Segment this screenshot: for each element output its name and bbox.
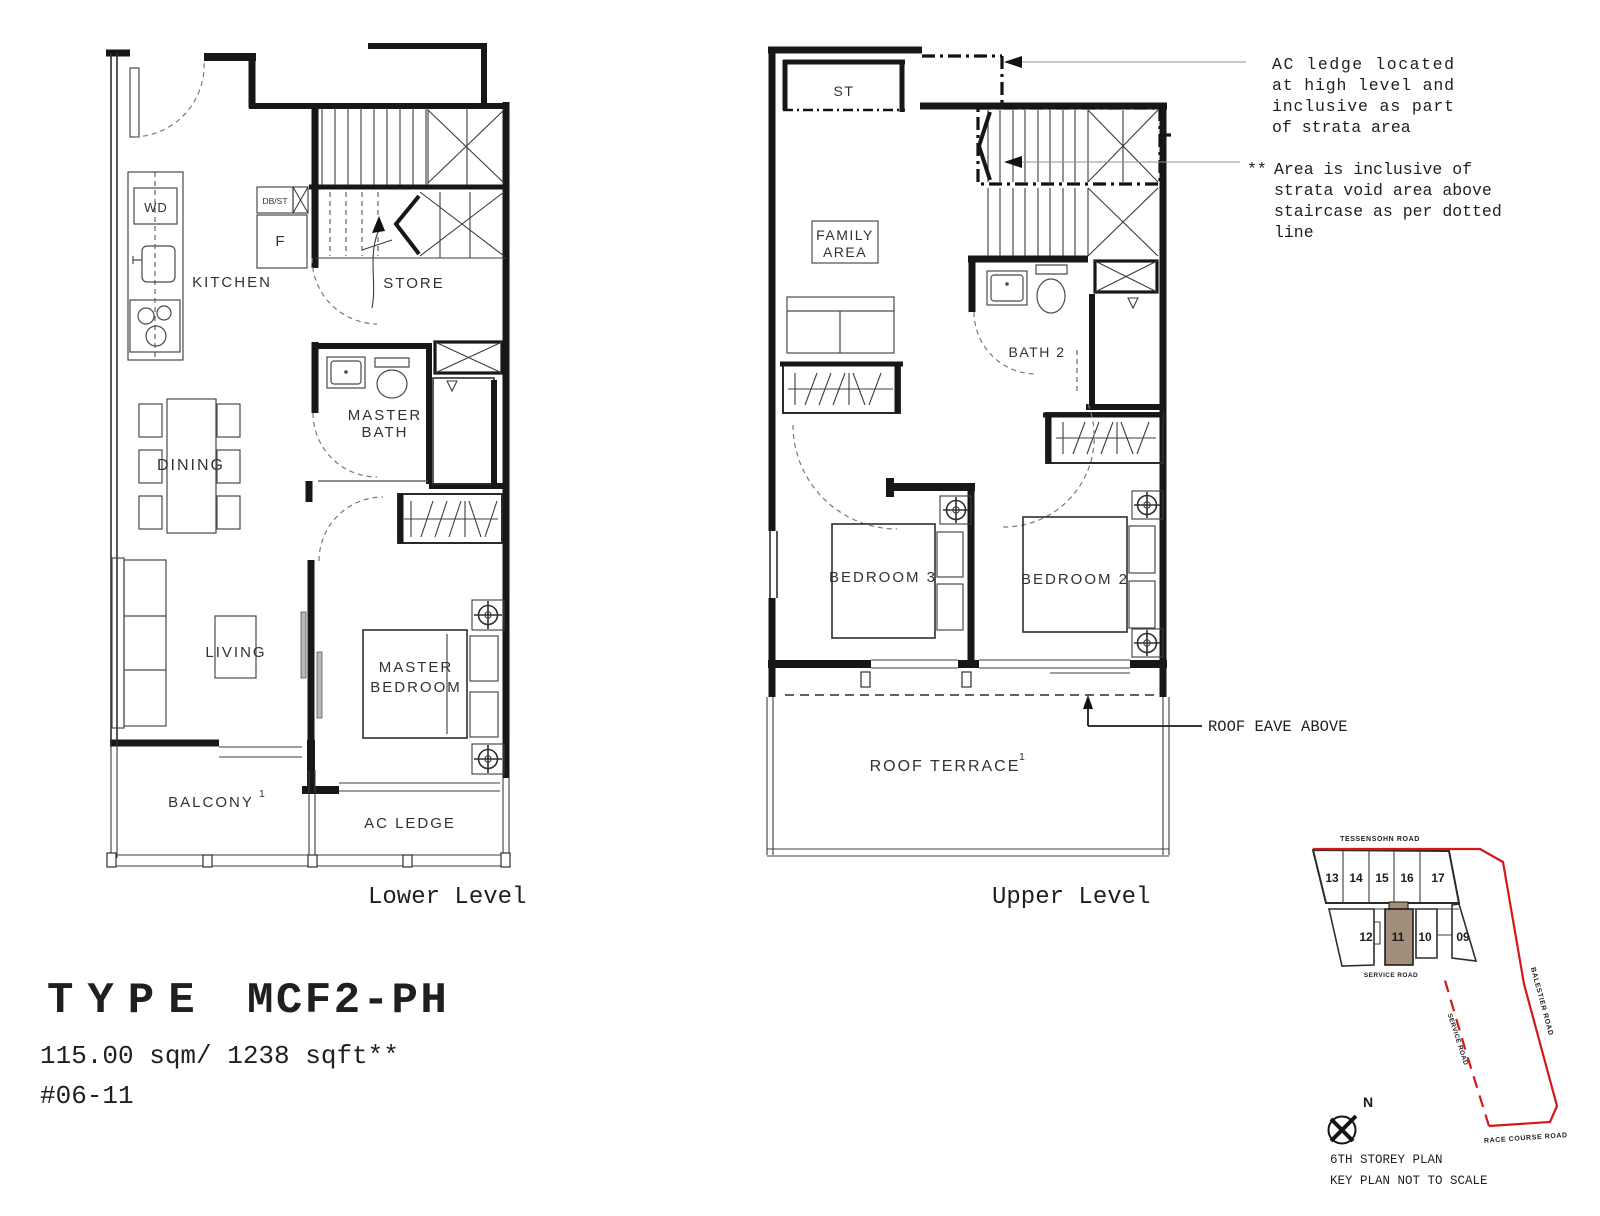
- stair-cut-line: [396, 196, 419, 254]
- balcony-superscript: 1: [259, 788, 265, 800]
- type-word: TYPE: [47, 976, 209, 1026]
- bedroom2-label: BEDROOM 2: [1021, 571, 1129, 588]
- upper-level-caption: Upper Level: [992, 884, 1150, 911]
- roof-terrace-outline: [767, 695, 1169, 856]
- store-door-swing: [312, 258, 377, 324]
- store-label: STORE: [383, 275, 444, 292]
- bath2-sink: [987, 271, 1027, 305]
- north-symbol: [1329, 1116, 1357, 1144]
- unit-14: 14: [1349, 871, 1363, 885]
- master-wardrobe: [398, 494, 502, 543]
- sink-tap: [133, 256, 142, 264]
- road-race-course: RACE COURSE ROAD: [1484, 1132, 1568, 1145]
- ac-ledge-label: AC LEDGE: [364, 815, 456, 832]
- kitchen-label: KITCHEN: [192, 274, 272, 291]
- unit-11-highlighted: 11: [1392, 930, 1405, 944]
- unit-17: 17: [1431, 871, 1445, 885]
- annotations: AC ledge located at high level and inclu…: [1004, 55, 1502, 736]
- dining-label: DINING: [157, 457, 225, 474]
- family-area-label-2: AREA: [823, 244, 867, 260]
- unit-10: 10: [1418, 930, 1432, 944]
- ceiling-point: [472, 744, 504, 774]
- ac-note-line-3: inclusive as part: [1272, 97, 1454, 116]
- ac-duct-box: [1095, 261, 1157, 308]
- bedroom-door-swing: [319, 497, 383, 561]
- lower-level-caption: Lower Level: [368, 884, 526, 911]
- roof-eave-label: ROOF EAVE ABOVE: [1208, 718, 1348, 736]
- unit-12: 12: [1359, 930, 1373, 944]
- ac-duct-box: [435, 342, 502, 373]
- living-label: LIVING: [205, 644, 266, 661]
- road-tessensohn: TESSENSOHN ROAD: [1340, 836, 1420, 843]
- keyplan-caption-2: KEY PLAN NOT TO SCALE: [1330, 1174, 1488, 1188]
- roof-eave-leader: [1088, 703, 1202, 726]
- sliding-door-panel: [317, 652, 322, 718]
- dbst-label: DB/ST: [262, 196, 287, 206]
- ac-note-line-4: of strata area: [1272, 118, 1411, 137]
- ceiling-point: [472, 600, 504, 630]
- master-bedroom-label-2: BEDROOM: [370, 679, 462, 696]
- entry-door-leaf: [130, 68, 139, 137]
- unit-16: 16: [1400, 871, 1414, 885]
- master-bedroom-label-1: MASTER: [379, 659, 454, 676]
- ac-note-arrow: [1004, 56, 1022, 68]
- upper-level-plan: ST FAMILY AREA BATH 2 BEDROOM 3 BEDROOM …: [767, 47, 1171, 911]
- floorplan-sheet: WD DB/ST F KITCHEN STORE MASTER BATH DIN…: [0, 0, 1600, 1216]
- roof-terrace-superscript: 1: [1019, 751, 1025, 763]
- roof-eave-arrow: [1083, 695, 1093, 709]
- wd-label: WD: [144, 200, 168, 215]
- bedroom2-wardrobe: [1043, 413, 1163, 463]
- lower-level-plan: WD DB/ST F KITCHEN STORE MASTER BATH DIN…: [106, 46, 526, 911]
- ac-note-line-2: at high level and: [1272, 76, 1454, 95]
- balcony-label: BALCONY: [168, 794, 254, 811]
- shower-mark: [1128, 298, 1138, 308]
- master-bath-label-2: BATH: [362, 424, 409, 441]
- bath2-label: BATH 2: [1009, 344, 1066, 360]
- keyplan-building: [1313, 850, 1476, 966]
- bath2-toilet: [1036, 265, 1067, 313]
- stair-direction-line: [362, 232, 392, 308]
- strata-note-line-4: line: [1274, 223, 1314, 242]
- sliding-door-panel: [301, 612, 306, 678]
- strata-note-line-3: staircase as per dotted: [1274, 202, 1502, 221]
- st-label: ST: [834, 83, 855, 99]
- key-plan: TESSENSOHN ROAD 13 14 15 16 17 12 11 10 …: [1313, 836, 1568, 1188]
- strata-note-marker: **: [1247, 160, 1267, 179]
- ceiling-point: [1132, 629, 1163, 657]
- site-boundary: [1313, 849, 1557, 1126]
- keyplan-caption-1: 6TH STOREY PLAN: [1330, 1153, 1443, 1167]
- unit-13: 13: [1325, 871, 1339, 885]
- bath2-door-swing: [974, 312, 1036, 374]
- bedroom3-label: BEDROOM 3: [829, 569, 937, 586]
- road-balestier: BALESTIER ROAD: [1529, 967, 1554, 1037]
- type-code: MCF2-PH: [247, 976, 449, 1026]
- floorplan-drawing: WD DB/ST F KITCHEN STORE MASTER BATH DIN…: [0, 0, 1600, 1216]
- bath2-fixtures: [974, 265, 1077, 395]
- shower-mark: [447, 381, 457, 391]
- roof-terrace-label: ROOF TERRACE: [870, 758, 1021, 775]
- service-road-dashed: [1444, 977, 1489, 1126]
- toilet: [375, 358, 409, 398]
- closet-niche: [433, 378, 494, 486]
- family-sofa: [787, 297, 894, 353]
- unit-number: #06-11: [40, 1081, 134, 1111]
- ceiling-point: [1132, 491, 1163, 519]
- title-block: TYPE MCF2-PH 115.00 sqm/ 1238 sqft** #06…: [40, 976, 449, 1111]
- unit-09: 09: [1456, 930, 1470, 944]
- master-bath-label-1: MASTER: [348, 407, 423, 424]
- kitchen-sink: [142, 246, 175, 282]
- stair-up-arrow: [372, 216, 385, 233]
- family-area-label-box: FAMILY AREA: [812, 221, 878, 263]
- sofa: [112, 558, 166, 728]
- north-label: N: [1363, 1094, 1373, 1110]
- strata-note-line-2: strata void area above: [1274, 181, 1492, 200]
- family-area-label-1: FAMILY: [816, 227, 874, 243]
- ac-note-line-1: AC ledge located: [1272, 55, 1454, 74]
- unit-area: 115.00 sqm/ 1238 sqft**: [40, 1041, 399, 1071]
- bedroom3-door-swing: [793, 425, 897, 529]
- road-service-top: SERVICE ROAD: [1364, 972, 1418, 979]
- upper-walls: [768, 47, 1171, 697]
- strata-note-line-1: Area is inclusive of: [1274, 160, 1472, 179]
- entry-door-swing: [134, 60, 204, 137]
- unit-15: 15: [1375, 871, 1389, 885]
- family-wardrobe: [780, 364, 903, 413]
- fridge-label: F: [275, 233, 286, 250]
- ceiling-point: [940, 496, 971, 524]
